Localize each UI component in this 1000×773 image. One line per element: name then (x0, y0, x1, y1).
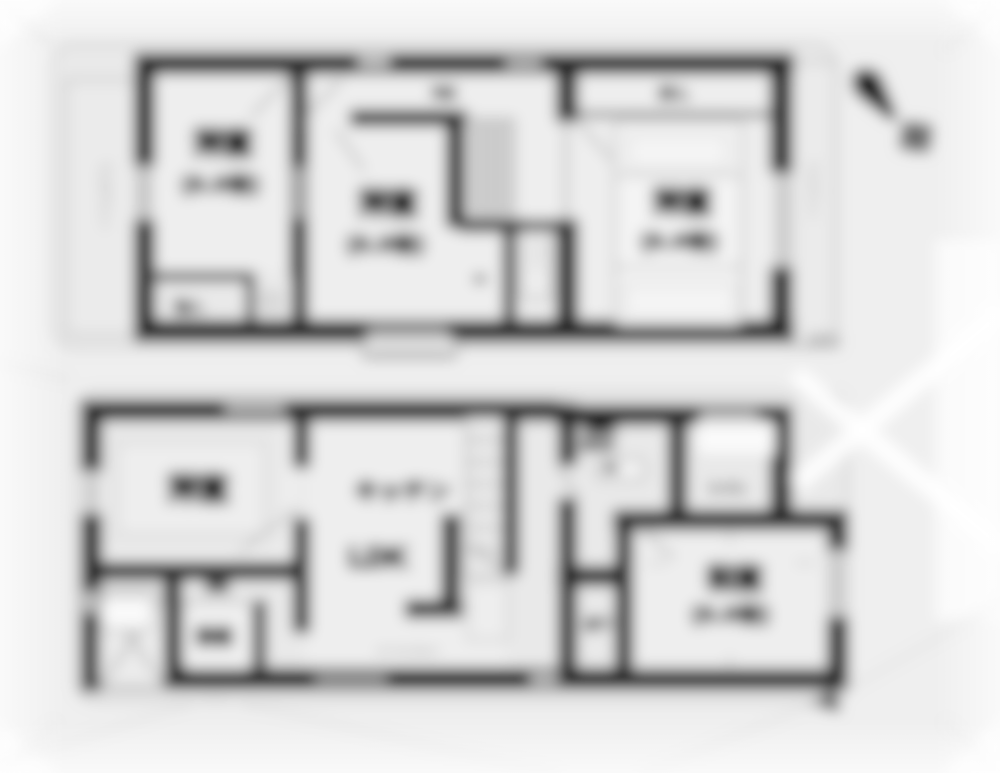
svg-text:トイレ: トイレ (531, 238, 543, 268)
svg-text:洋室: 洋室 (167, 472, 229, 507)
svg-text:和室: 和室 (707, 562, 763, 594)
svg-text:洋室: 洋室 (652, 186, 712, 220)
svg-text:洗面: 洗面 (205, 579, 229, 594)
svg-text:廊下: 廊下 (585, 617, 611, 632)
svg-text:キッチン: キッチン (355, 478, 451, 504)
svg-text:脱衣所: 脱衣所 (582, 438, 615, 452)
svg-text:バルコニー: バルコニー (806, 162, 819, 222)
svg-text:洋室: 洋室 (193, 127, 253, 161)
svg-text:浴室: 浴室 (195, 625, 233, 648)
svg-text:1F=52.99m2: 1F=52.99m2 (376, 646, 438, 658)
svg-text:バルコニー: バルコニー (97, 162, 112, 232)
svg-text:(8.0帖): (8.0帖) (641, 230, 720, 253)
svg-text:押入: 押入 (659, 85, 689, 103)
svg-text:吹抜: 吹抜 (432, 85, 457, 100)
svg-text:物入: 物入 (175, 299, 203, 315)
svg-text:LDK: LDK (348, 542, 408, 574)
svg-text:(6.0帖): (6.0帖) (182, 173, 261, 196)
svg-text:(6.0帖): (6.0帖) (347, 233, 426, 256)
svg-text:洋室: 洋室 (358, 187, 418, 221)
svg-text:トイレ: トイレ (707, 481, 746, 496)
svg-text:(6.0帖): (6.0帖) (692, 603, 771, 626)
svg-text:洗面所: 洗面所 (584, 423, 617, 437)
